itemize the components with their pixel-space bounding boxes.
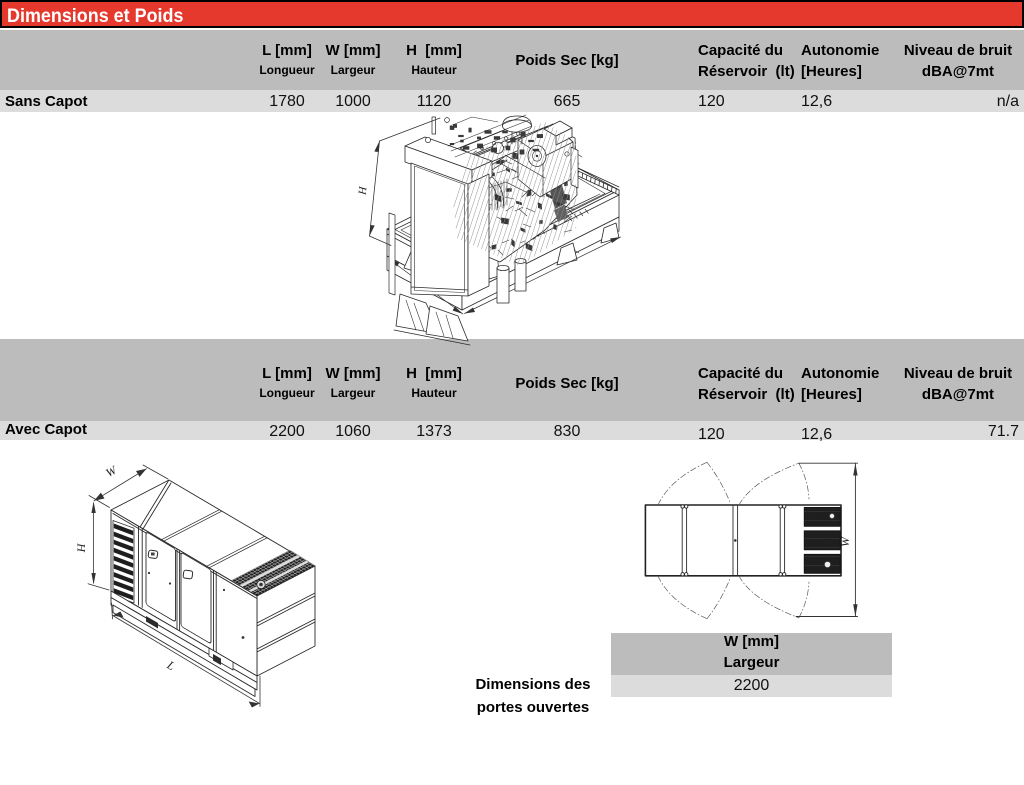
svg-text:W: W bbox=[103, 462, 119, 480]
svg-text:H: H bbox=[74, 542, 88, 553]
svg-text:W: W bbox=[838, 536, 852, 547]
svg-text:L: L bbox=[164, 657, 178, 673]
svg-text:H: H bbox=[357, 185, 370, 196]
